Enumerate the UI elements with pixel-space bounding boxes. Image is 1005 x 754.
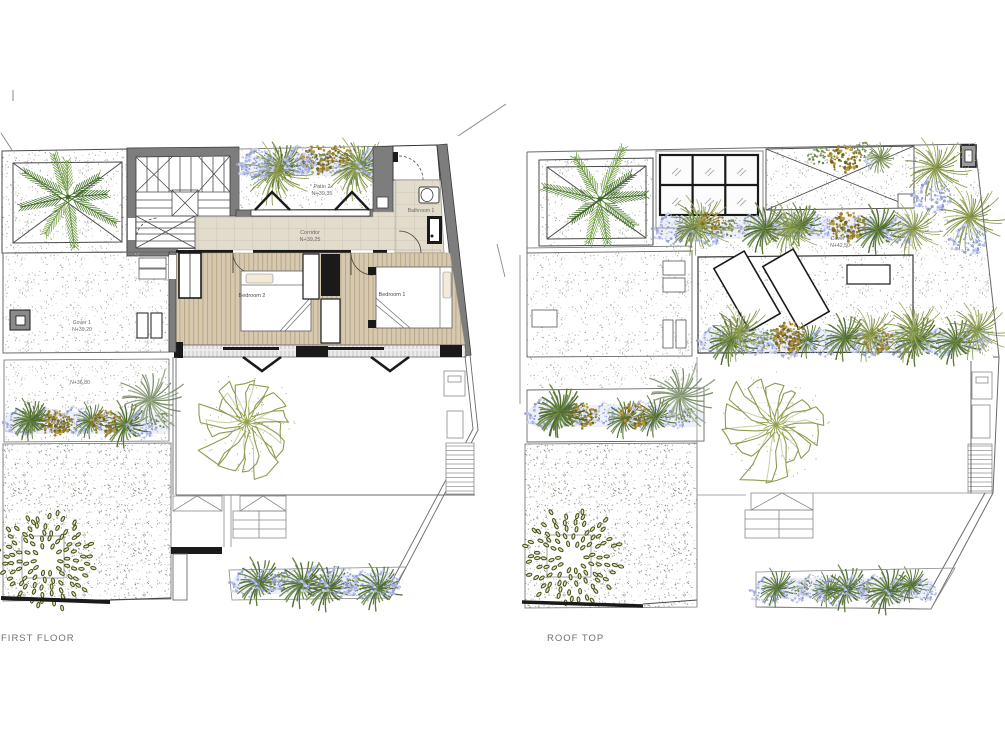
svg-text:Bedroom 1: Bedroom 1 — [379, 292, 406, 298]
svg-text:Bathroom 1: Bathroom 1 — [408, 208, 435, 214]
svg-text:ROOF TOP: ROOF TOP — [547, 633, 604, 644]
svg-text:N+39,20: N+39,20 — [72, 327, 92, 333]
svg-text:Bedroom 2: Bedroom 2 — [239, 293, 266, 299]
svg-text:N+36,80: N+36,80 — [70, 380, 90, 386]
svg-text:FIRST FLOOR: FIRST FLOOR — [1, 633, 75, 644]
svg-text:N+39,25: N+39,25 — [300, 237, 321, 243]
svg-text:Corridor: Corridor — [300, 230, 320, 236]
svg-text:N+39,35: N+39,35 — [312, 191, 333, 197]
svg-text:Patio 2: Patio 2 — [313, 184, 330, 190]
svg-text:Cover 1: Cover 1 — [831, 236, 849, 242]
svg-text:N+42,50: N+42,50 — [830, 243, 850, 249]
svg-text:Cover 1: Cover 1 — [73, 320, 91, 326]
